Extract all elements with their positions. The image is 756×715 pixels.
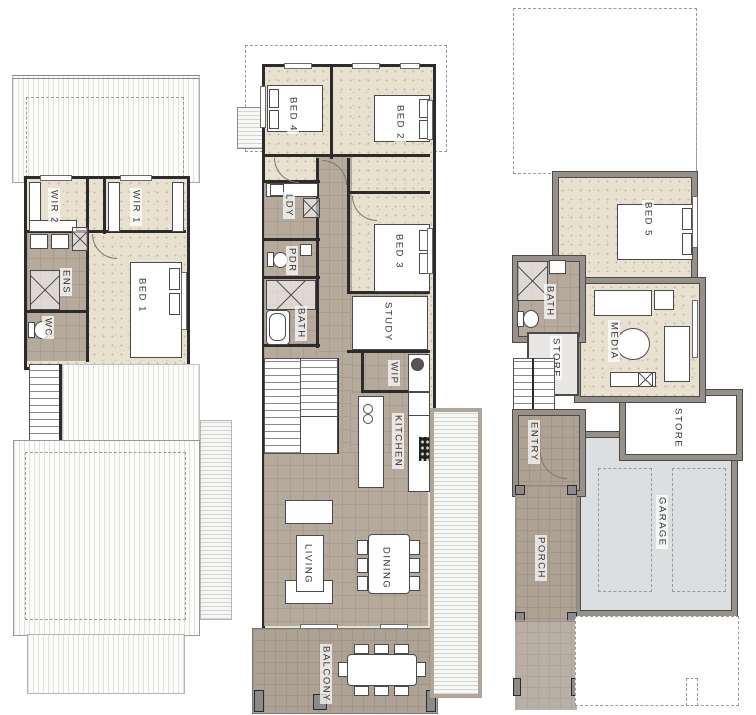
path-post (513, 678, 521, 696)
room-label-bath: BATH (295, 306, 307, 341)
car-space (672, 468, 726, 592)
room-label-bed2: BED 2 (394, 103, 406, 142)
sofa (594, 290, 652, 316)
car-space (598, 468, 652, 592)
room-label-bed5: BED 5 (642, 200, 654, 239)
chair (394, 644, 409, 654)
window (284, 63, 312, 69)
side-deck (200, 420, 232, 620)
wall (264, 276, 320, 279)
room-label-pdr: PDR (286, 246, 298, 275)
chair (357, 576, 368, 591)
linen-cupboard (72, 227, 88, 251)
pillow (682, 233, 692, 255)
wall (361, 352, 364, 392)
armchair (654, 290, 674, 310)
room-label-garage: GARAGE (656, 495, 668, 549)
room-label-bathC: BATH (544, 284, 556, 319)
chair (409, 576, 420, 591)
entry-path (515, 620, 577, 710)
room-label-wir1: WIR 1 (130, 188, 142, 226)
pillow (682, 208, 692, 230)
lower-deck-roof (27, 634, 185, 694)
chair (357, 540, 368, 555)
fridge (408, 392, 430, 416)
pillow (269, 89, 279, 108)
floor-plan-main: BED 4 BED 2 LDY PDR BATH BED 3 STUDY WIP… (230, 0, 480, 715)
wall (330, 64, 333, 159)
roof-outline-dashed (25, 452, 186, 620)
window (692, 300, 698, 358)
toilet (523, 310, 539, 328)
wall (264, 238, 320, 241)
wall (347, 350, 430, 353)
porch-post (567, 485, 577, 495)
window (692, 196, 698, 248)
wardrobe-shelf (108, 182, 120, 232)
floor-plan-ground: GARAGE STORE BED 5 MEDIA BATH STORE (480, 0, 756, 715)
chair (394, 686, 409, 696)
sofa (664, 326, 690, 382)
roof-outline-dashed (26, 97, 184, 178)
basin (549, 260, 566, 274)
hall-patch (264, 346, 318, 358)
laundry-tub (270, 184, 284, 196)
cabinet (638, 372, 653, 387)
chair (409, 540, 420, 555)
vanity-basin (51, 234, 69, 249)
stair-flight (513, 358, 555, 412)
window (352, 63, 380, 69)
window (427, 228, 433, 274)
room-label-living: LIVING (302, 542, 314, 586)
pantry-sink (411, 358, 424, 371)
wall (347, 158, 350, 294)
wall (333, 154, 430, 157)
room-label-wc: WC (42, 316, 54, 339)
driveway-marker (686, 678, 698, 706)
room-label-entry: ENTRY (528, 420, 540, 464)
wall (103, 178, 106, 234)
room-label-wir2: WIR 2 (48, 188, 60, 226)
balcony-post (254, 690, 264, 712)
window (181, 272, 187, 330)
room-label-dining: DINING (380, 545, 392, 591)
window (120, 175, 152, 181)
room-label-ldy: LDY (283, 192, 295, 219)
coffee-table (616, 328, 650, 360)
cooktop (419, 437, 429, 461)
kitchen-sink (363, 404, 373, 414)
chair (354, 686, 369, 696)
bathtub-inner (269, 313, 286, 341)
room-label-store-garage: STORE (672, 406, 684, 450)
chair (409, 558, 420, 573)
stair-landing (300, 416, 338, 454)
room-label-bed3: BED 3 (393, 232, 405, 271)
chair (374, 686, 389, 696)
chair (354, 644, 369, 654)
stair-flight (264, 358, 302, 454)
window (40, 175, 72, 181)
boundary-dashed (513, 8, 697, 174)
wall (27, 310, 87, 313)
room-label-balcony: BALCONY (320, 644, 332, 704)
stair-flight (300, 358, 338, 418)
stair-stringer (532, 358, 534, 410)
chair (357, 558, 368, 573)
shower (30, 270, 60, 310)
chair (374, 644, 389, 654)
vanity-basin (30, 234, 48, 249)
basin (300, 244, 312, 256)
room-label-study: STUDY (382, 300, 394, 344)
room-label-porch: PORCH (535, 535, 547, 581)
window (400, 63, 420, 69)
driveway-outline (575, 616, 739, 706)
window (427, 100, 433, 140)
outdoor-table (347, 654, 417, 686)
wall (264, 154, 333, 157)
room-label-bed1: BED 1 (136, 276, 148, 315)
room-label-wip: WIP (388, 360, 400, 386)
window (260, 86, 266, 128)
shower (266, 280, 316, 310)
floor-plan-sheet: WIR 2 WIR 1 ENS WC BED 1 (0, 0, 756, 715)
floor-plan-upper: WIR 2 WIR 1 ENS WC BED 1 (0, 0, 240, 715)
room-label-ens: ENS (60, 268, 72, 296)
room-label-kitchen: KITCHEN (392, 413, 404, 469)
cupboard (303, 198, 320, 218)
wall (347, 191, 430, 194)
chair (416, 662, 426, 677)
wall (86, 178, 89, 234)
pillow (169, 268, 180, 290)
chair (338, 662, 348, 677)
wall (86, 232, 89, 362)
stairwell (29, 364, 61, 442)
pillow (169, 293, 180, 315)
kitchen-sink (363, 414, 373, 424)
pillow (269, 110, 279, 129)
wardrobe-shelf (172, 182, 184, 232)
porch-post (515, 485, 525, 495)
sofa (285, 500, 333, 524)
room-label-media: MEDIA (608, 320, 620, 362)
roof-panel (62, 364, 200, 442)
side-deck (430, 408, 482, 698)
room-label-bed4: BED 4 (287, 95, 299, 134)
